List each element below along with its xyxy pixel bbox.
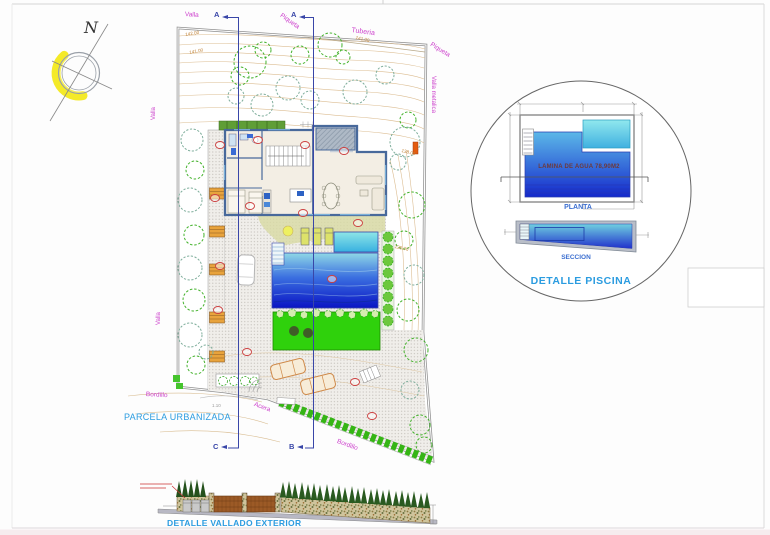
label-bordillo-left: Bordillo xyxy=(146,392,168,400)
pool-water xyxy=(272,253,378,308)
car-white xyxy=(237,255,255,286)
label-dim-entry: 1.10 xyxy=(212,404,221,409)
section-arrow-b xyxy=(297,445,303,449)
section-marker-c: C xyxy=(213,443,218,451)
section-marker-b: B xyxy=(289,443,294,451)
pool-water-area-label: LAMINA DE AGUA 78,90M2 xyxy=(527,164,631,170)
section-marker-a2: A xyxy=(291,11,296,19)
pillars xyxy=(183,500,209,512)
section-marker-a1: A xyxy=(214,11,219,19)
fence-detail-title: DETALLE VALLADO EXTERIOR xyxy=(167,519,301,528)
garage xyxy=(316,128,355,150)
parasol xyxy=(283,226,293,236)
north-label: N xyxy=(84,20,98,36)
label-valla-metalica: Valla metalica xyxy=(430,76,436,113)
lawn xyxy=(273,309,380,350)
seccion-label: SECCION xyxy=(550,255,602,262)
label-parcela-urbanizada: PARCELA URBANIZADA xyxy=(124,413,231,422)
site-plan-svg xyxy=(0,0,770,535)
stairs xyxy=(266,146,310,166)
pergola xyxy=(219,121,285,130)
pool-steps xyxy=(272,243,284,265)
pool-detail-title: DETALLE PISCINA xyxy=(526,276,636,287)
beds xyxy=(228,190,262,213)
label-valla-left-upper: Valla xyxy=(151,107,157,120)
section-arrow-a2 xyxy=(299,15,305,19)
label-valla-top: Valla xyxy=(185,12,199,19)
spa xyxy=(334,232,378,252)
section-arrow-a1 xyxy=(222,15,228,19)
label-valla-left-lower: Valla xyxy=(156,312,162,325)
planta-label: PLANTA xyxy=(553,204,603,211)
compass-rose xyxy=(50,24,112,121)
hedge-strip xyxy=(382,231,394,330)
pool-detail xyxy=(471,81,691,301)
sun-loungers xyxy=(301,228,333,245)
section-arrow-c xyxy=(221,445,227,449)
title-block-stub xyxy=(688,268,764,307)
drawing-sheet: N Valla Piqueta Tuberia Piqueta Valla me… xyxy=(0,0,770,535)
